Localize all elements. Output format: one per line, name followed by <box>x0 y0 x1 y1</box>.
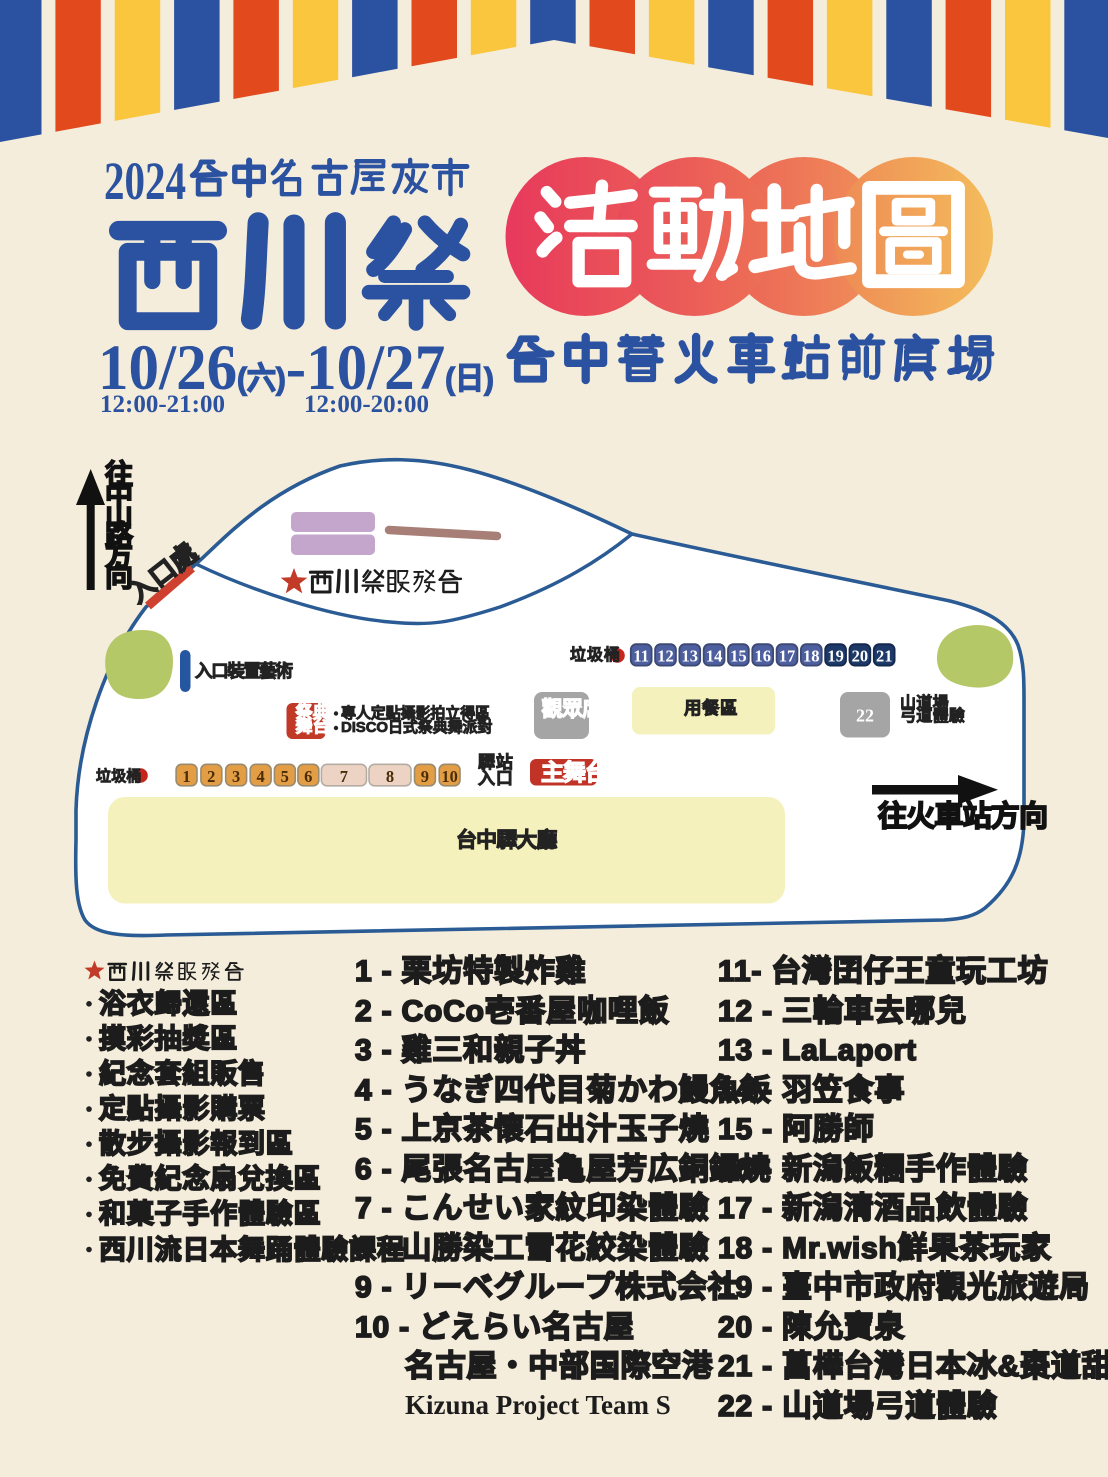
svg-text:12: 12 <box>657 647 674 666</box>
svg-text:1: 1 <box>182 767 190 786</box>
svg-text:10: 10 <box>441 767 458 786</box>
svg-text:16: 16 <box>754 647 771 666</box>
svg-text:13: 13 <box>682 647 699 666</box>
svg-text:19: 19 <box>827 647 844 666</box>
svg-text:20: 20 <box>852 647 869 666</box>
svg-text:14: 14 <box>706 647 723 666</box>
svg-text:4: 4 <box>256 767 264 786</box>
svg-text:22: 22 <box>856 706 874 726</box>
svg-text:8: 8 <box>386 767 394 786</box>
svg-text:17: 17 <box>779 647 796 666</box>
svg-text:7: 7 <box>340 767 348 786</box>
svg-text:9: 9 <box>421 767 429 786</box>
svg-text:18: 18 <box>803 647 820 666</box>
svg-text:6: 6 <box>304 767 312 786</box>
svg-text:2: 2 <box>207 767 215 786</box>
svg-text:21: 21 <box>876 647 893 666</box>
svg-text:5: 5 <box>281 767 289 786</box>
svg-text:15: 15 <box>730 647 747 666</box>
svg-text:11: 11 <box>633 647 649 666</box>
svg-text:3: 3 <box>232 767 240 786</box>
